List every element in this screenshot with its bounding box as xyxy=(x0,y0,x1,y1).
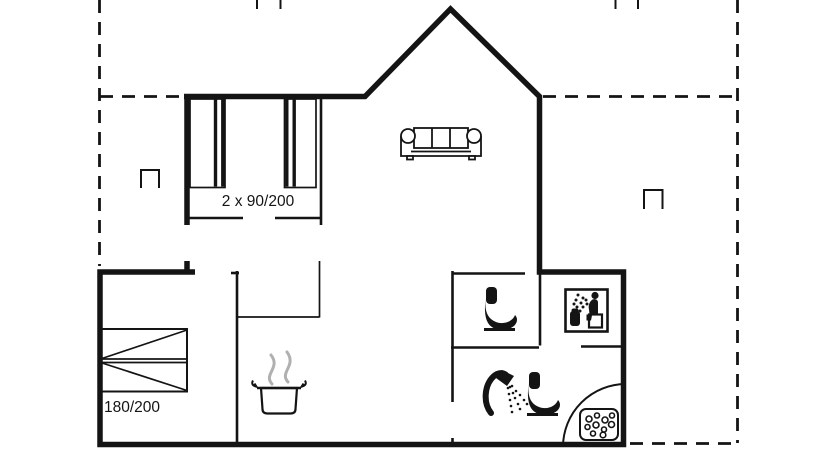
pot-handle-left xyxy=(252,381,257,388)
vent-symbol-left xyxy=(141,170,159,188)
sofa-icon xyxy=(401,128,481,160)
double-bed-duvet-fold-bottom xyxy=(101,363,188,391)
kitchen-partition xyxy=(236,261,320,318)
sofa-foot-left xyxy=(407,156,413,160)
vent-symbol-top-left-cut xyxy=(257,0,281,9)
floor-plan-canvas: 2 x 90/200 180/200 xyxy=(0,0,834,460)
vent-symbol-top-right-cut xyxy=(616,0,639,9)
corner-shower xyxy=(563,384,626,447)
steam-wave-1 xyxy=(269,355,274,384)
sofa-foot-right xyxy=(469,156,475,160)
sauna-person-head xyxy=(591,292,598,299)
steam-icon xyxy=(269,352,290,384)
roof-overhang-dashed-outline xyxy=(100,0,738,444)
sofa-armrest-right xyxy=(467,129,481,143)
sofa-armrest-left xyxy=(401,129,415,143)
double-bed-duvet-fold-top xyxy=(101,330,188,359)
sofa-back-cushions xyxy=(414,128,468,148)
toilet-icon-wc xyxy=(484,287,517,331)
floor-plan: 2 x 90/200 180/200 xyxy=(0,0,834,460)
vent-symbols xyxy=(141,0,663,209)
toilet-icon-bathroom xyxy=(527,372,560,416)
bunk-beds-label: 2 x 90/200 xyxy=(222,193,295,210)
pot-handle-right xyxy=(301,381,306,388)
shower-spray-dots xyxy=(507,385,529,414)
exterior-walls xyxy=(100,9,624,445)
bunk-beds-icon xyxy=(190,99,316,188)
sauna-bucket xyxy=(570,311,580,326)
shower-head-icon xyxy=(486,370,529,413)
pot-body xyxy=(261,388,297,414)
single-bed-right xyxy=(285,99,317,188)
steam-wave-2 xyxy=(285,352,290,382)
vent-symbol-right xyxy=(644,190,663,209)
double-bed-outline xyxy=(101,329,188,392)
sauna-bucket-lid xyxy=(572,309,579,313)
sauna-icon xyxy=(566,290,608,332)
double-bed-icon xyxy=(101,329,188,392)
single-bed-left xyxy=(190,99,225,188)
double-bed-label: 180/200 xyxy=(104,399,160,416)
cooking-pot-icon xyxy=(252,381,306,414)
